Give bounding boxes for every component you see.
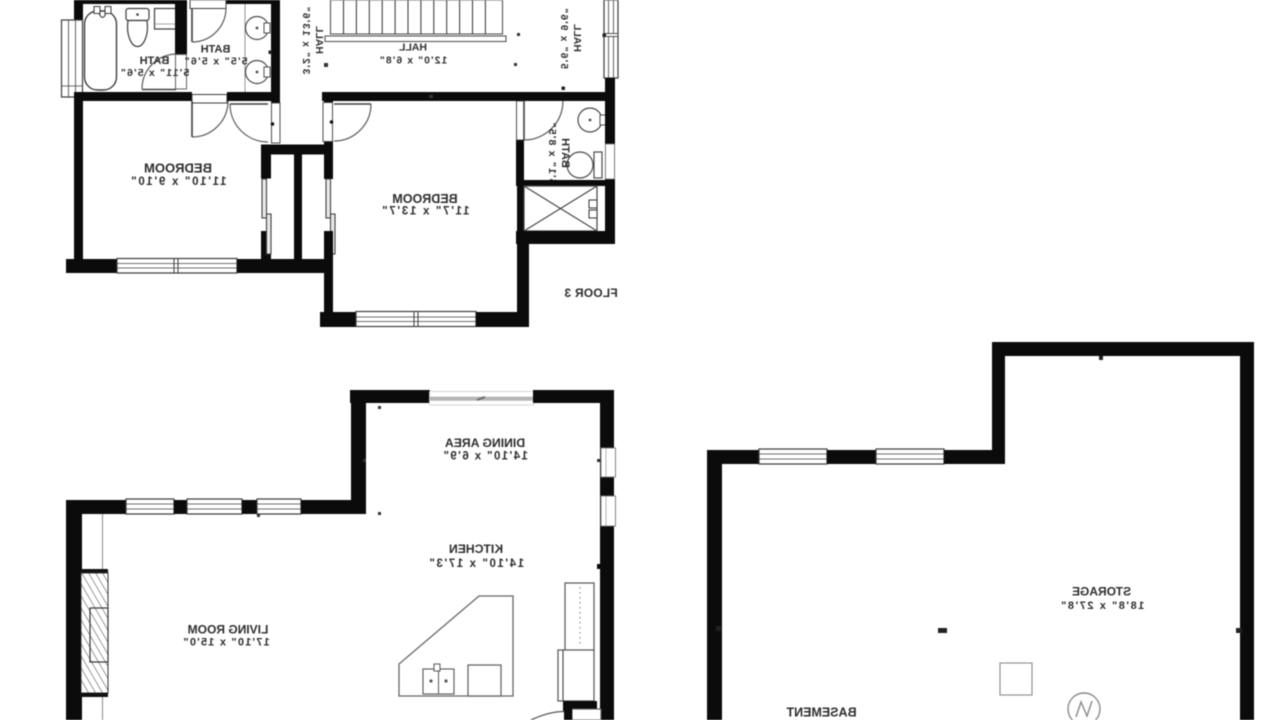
svg-text:STORAGE: STORAGE bbox=[1072, 585, 1131, 599]
svg-text:BATH: BATH bbox=[201, 44, 231, 56]
svg-text:HALL: HALL bbox=[571, 23, 583, 52]
svg-text:11'7" x 13'7": 11'7" x 13'7" bbox=[381, 206, 470, 218]
svg-text:17'10" x 15'0": 17'10" x 15'0" bbox=[182, 637, 270, 649]
svg-text:BATH: BATH bbox=[140, 55, 170, 67]
svg-text:BATH: BATH bbox=[559, 138, 571, 168]
svg-text:HALL: HALL bbox=[313, 25, 325, 54]
svg-text:5'11" x 5'6": 5'11" x 5'6" bbox=[120, 67, 190, 79]
svg-text:14'10" x 17'3": 14'10" x 17'3" bbox=[428, 558, 524, 570]
svg-text:12'0" x 6'8": 12'0" x 6'8" bbox=[379, 56, 448, 67]
svg-text:LIVING ROOM: LIVING ROOM bbox=[188, 623, 269, 637]
svg-text:KITCHEN: KITCHEN bbox=[449, 542, 503, 556]
svg-text:11'10" x 9'10": 11'10" x 9'10" bbox=[129, 176, 226, 188]
svg-text:BASEMENT: BASEMENT bbox=[786, 706, 857, 720]
svg-text:FLOOR 3: FLOOR 3 bbox=[564, 286, 618, 300]
svg-text:14'10" x 6'9": 14'10" x 6'9" bbox=[442, 451, 528, 463]
svg-text:HALL: HALL bbox=[398, 42, 427, 54]
svg-text:5'6" x 9'6": 5'6" x 9'6" bbox=[558, 7, 569, 69]
svg-text:BEDROOM: BEDROOM bbox=[392, 192, 457, 206]
svg-text:BEDROOM: BEDROOM bbox=[144, 161, 212, 176]
svg-text:3'2" x 13'6": 3'2" x 13'6" bbox=[300, 6, 311, 75]
svg-text:DINING AREA: DINING AREA bbox=[445, 436, 525, 450]
svg-text:5'5" x 5'6": 5'5" x 5'6" bbox=[183, 56, 247, 68]
svg-text:5'1" x 8'5": 5'1" x 8'5" bbox=[546, 121, 558, 184]
svg-text:18'8" x 27'8": 18'8" x 27'8" bbox=[1060, 600, 1145, 612]
